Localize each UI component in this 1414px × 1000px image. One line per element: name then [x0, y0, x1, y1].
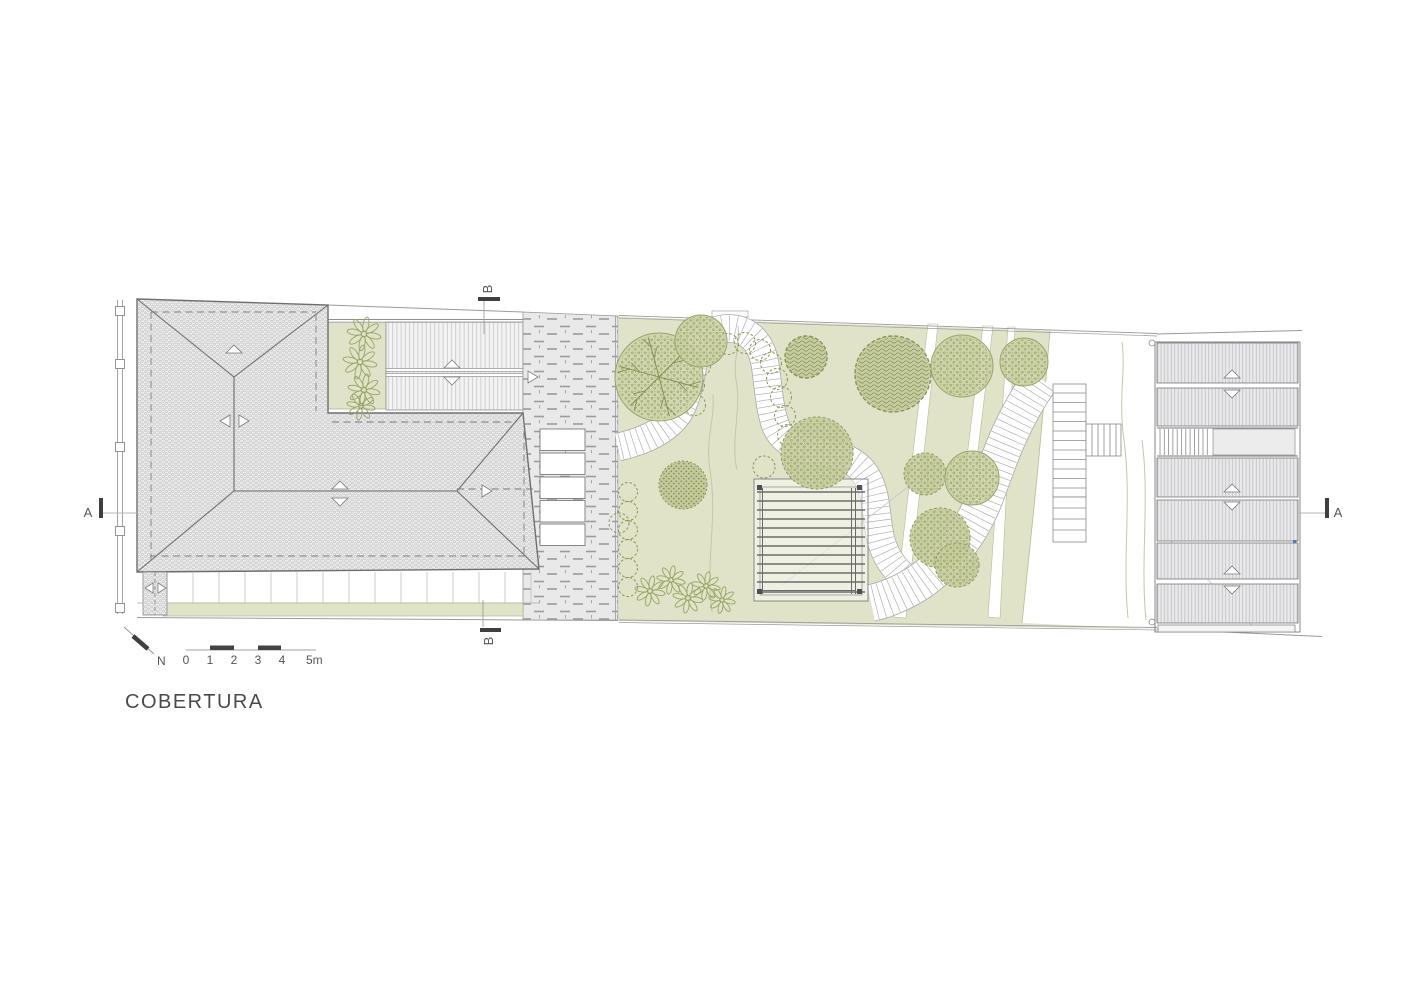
walkway-strip [137, 572, 539, 616]
scale-label: 0 [183, 653, 190, 667]
tree-speckle [945, 451, 999, 505]
scale-label: 3 [255, 653, 262, 667]
skylights [540, 429, 585, 546]
roof-plan-canvas: A A B B N 0 1 2 3 4 5m COBERTURA [0, 0, 1414, 1000]
north-arrow-icon [133, 636, 148, 649]
paver-terrace [523, 312, 618, 620]
roof-ledge [1158, 625, 1295, 632]
north-label: N [157, 654, 166, 668]
section-marker-a-right: A [1298, 498, 1343, 520]
tree-bush [659, 461, 707, 509]
scale-label: 2 [231, 653, 238, 667]
section-letter: A [1334, 505, 1343, 520]
pergola [754, 479, 868, 601]
tree-fluffy [781, 417, 853, 489]
site-fence-left [116, 300, 125, 614]
scale-label: 4 [279, 653, 286, 667]
planting-strip [163, 603, 523, 616]
tree-speckle [675, 315, 727, 367]
tree-fluffy [904, 453, 946, 495]
tree-maze [785, 336, 827, 378]
scale-label: 5m [306, 653, 323, 667]
drawing-title: COBERTURA [125, 691, 264, 713]
tree-fluffy [935, 543, 979, 587]
scale-label: 1 [207, 653, 214, 667]
tree-speckle [931, 335, 993, 397]
section-letter: B [481, 637, 496, 646]
tree-maze [855, 336, 931, 412]
tree-speckle [1000, 338, 1048, 386]
north-arrow: N [124, 627, 166, 668]
stair-landing [1213, 429, 1295, 455]
scale-bar: 0 1 2 3 4 5m [183, 646, 323, 668]
right-panel-roof [1149, 340, 1300, 632]
section-marker-a-left: A [84, 498, 137, 520]
section-letter: B [480, 285, 495, 294]
section-letter: A [84, 505, 93, 520]
roof-stairwell [1157, 428, 1298, 456]
